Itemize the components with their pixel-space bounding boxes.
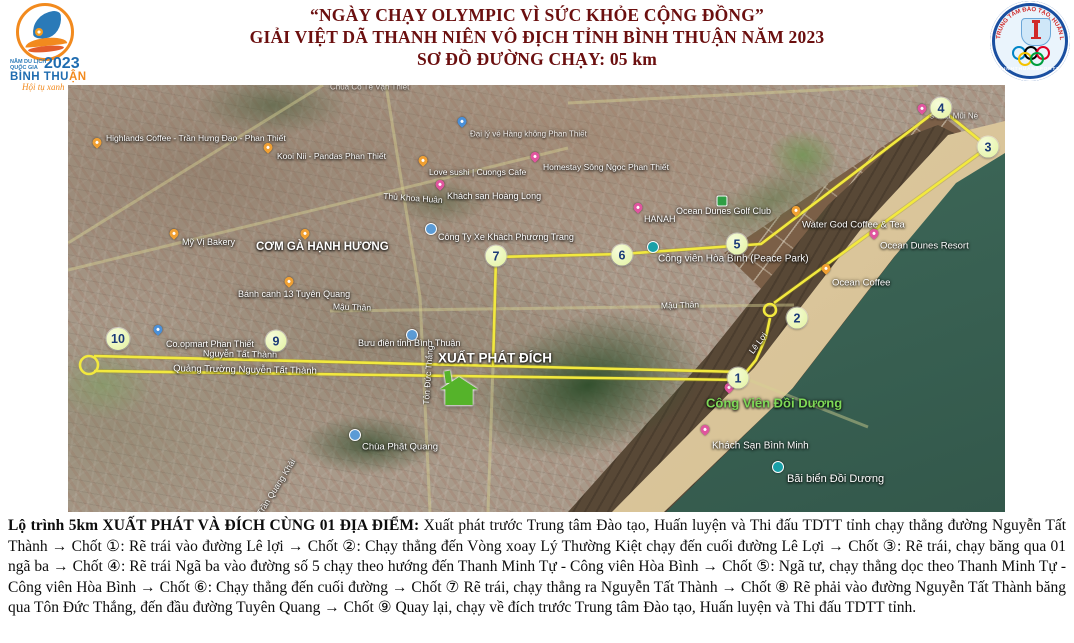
route-map: Highlands Coffee - Trần Hưng Đạo - Phan … — [68, 85, 1005, 512]
poi-label: Khách Sạn Bình Minh — [712, 441, 809, 452]
sq-green-map-pin-icon — [717, 196, 728, 207]
poi-label: Công Viên Đồi Dương — [706, 396, 842, 411]
route-overlay — [68, 85, 1005, 512]
checkpoint-marker-2: 2 — [787, 308, 808, 329]
teal-map-pin-icon — [647, 241, 659, 253]
blue-map-pin-icon — [425, 223, 437, 235]
poi-label: Bánh canh 13 Tuyên Quang — [238, 289, 350, 299]
poi-label: Ocean Dunes Resort — [880, 241, 969, 252]
poi-label: Kooi Nii - Pandas Phan Thiết — [277, 151, 386, 161]
poi-label: CƠM GÀ HẠNH HƯƠNG — [256, 241, 389, 253]
route-description-lead: Lộ trình 5km XUẤT PHÁT VÀ ĐÍCH CÙNG 01 Đ… — [8, 517, 419, 534]
title-line-3: SƠ ĐỒ ĐƯỜNG CHẠY: 05 km — [160, 48, 914, 70]
blue-map-pin-icon — [349, 429, 361, 441]
poi-label: Công Ty Xe Khách Phương Trang — [438, 232, 574, 242]
poi-label: Chùa Phật Quang — [362, 442, 438, 453]
sports-logo-bottom-text: BINHTHUANSPORTS — [990, 67, 1070, 72]
start-finish-house-icon — [440, 371, 478, 405]
binh-thuan-tourism-logo: NĂM DU LỊCH QUỐC GIA 2023 BÌNH THUẬN Hội… — [8, 2, 94, 85]
checkpoint-marker-3: 3 — [978, 137, 999, 158]
faint-road — [568, 85, 918, 103]
poi-label: Bãi biển Đồi Dương — [787, 473, 884, 485]
poster: NĂM DU LỊCH QUỐC GIA 2023 BÌNH THUẬN Hội… — [0, 0, 1074, 643]
poi-label: Ocean Dunes Golf Club — [676, 206, 771, 216]
tourism-logo-slogan: Hội tụ xanh — [22, 82, 65, 92]
poi-label: HANAH — [644, 214, 676, 224]
poi-label: Bưu điện tỉnh Bình Thuận — [358, 338, 460, 348]
checkpoint-marker-9: 9 — [266, 331, 287, 352]
checkpoint-marker-7: 7 — [486, 246, 507, 267]
checkpoint-marker-1: 1 — [728, 368, 749, 389]
poi-label: Mỹ Vị Bakery — [182, 237, 235, 247]
poi-label: Water God Coffee & Tea — [802, 220, 905, 231]
start-finish-label: XUẤT PHÁT ĐÍCH — [438, 351, 552, 366]
poi-label: Ocean Coffee — [832, 278, 890, 289]
checkpoint-marker-4: 4 — [931, 98, 952, 119]
checkpoint-marker-6: 6 — [612, 245, 633, 266]
route-roundabout — [80, 356, 98, 374]
road-label: Mậu Thân — [661, 299, 699, 310]
road-label: Mậu Thân — [333, 301, 371, 312]
poi-label: Highlands Coffee - Trần Hưng Đạo - Phan … — [106, 133, 286, 143]
faint-road — [68, 85, 323, 243]
teal-map-pin-icon — [772, 461, 784, 473]
checkpoint-marker-5: 5 — [727, 234, 748, 255]
poster-header: NĂM DU LỊCH QUỐC GIA 2023 BÌNH THUẬN Hội… — [0, 0, 1074, 85]
faint-road — [488, 366, 493, 512]
poster-title: “NGÀY CHẠY OLYMPIC VÌ SỨC KHỎE CỘNG ĐỒNG… — [160, 4, 914, 70]
tourism-logo-circle-icon — [16, 3, 74, 61]
title-line-2: GIẢI VIỆT DÃ THANH NIÊN VÔ ĐỊCH TỈNH BÌN… — [160, 26, 914, 48]
checkpoint-marker-10: 10 — [107, 328, 130, 350]
poi-label: Công viên Hòa Bình (Peace Park) — [658, 254, 809, 265]
sun-icon — [35, 28, 43, 36]
sports-center-logo: TRUNG TÂM ĐÀO TẠO, HUẤN LUYỆN VÀ THI ĐẤU… — [990, 1, 1070, 81]
poi-label: Đại lý vé Hàng không Phan Thiết — [470, 130, 587, 139]
route-description: Lộ trình 5km XUẤT PHÁT VÀ ĐÍCH CÙNG 01 Đ… — [8, 516, 1066, 619]
poi-label: Homestay Sông Ngọc Phan Thiết — [543, 162, 669, 172]
faint-road — [330, 305, 794, 311]
road-label: Nguyễn Tất Thành — [203, 348, 277, 359]
poi-label: Chùa Cổ Tế Vạn Thiết — [330, 85, 409, 92]
sports-logo-ring-text: TRUNG TÂM ĐÀO TẠO, HUẤN LUYỆN VÀ THI ĐẤU… — [990, 1, 1064, 41]
poi-label: Love sushi | Cuongs Cafe — [429, 167, 526, 177]
poi-label: Khách sạn Hoàng Long — [447, 191, 541, 201]
title-line-1: “NGÀY CHẠY OLYMPIC VÌ SỨC KHỎE CỘNG ĐỒNG… — [160, 4, 914, 26]
svg-text:TRUNG TÂM ĐÀO TẠO, HUẤN LUYỆN: TRUNG TÂM ĐÀO TẠO, HUẤN LUYỆN VÀ THI ĐẤU… — [990, 1, 1064, 41]
